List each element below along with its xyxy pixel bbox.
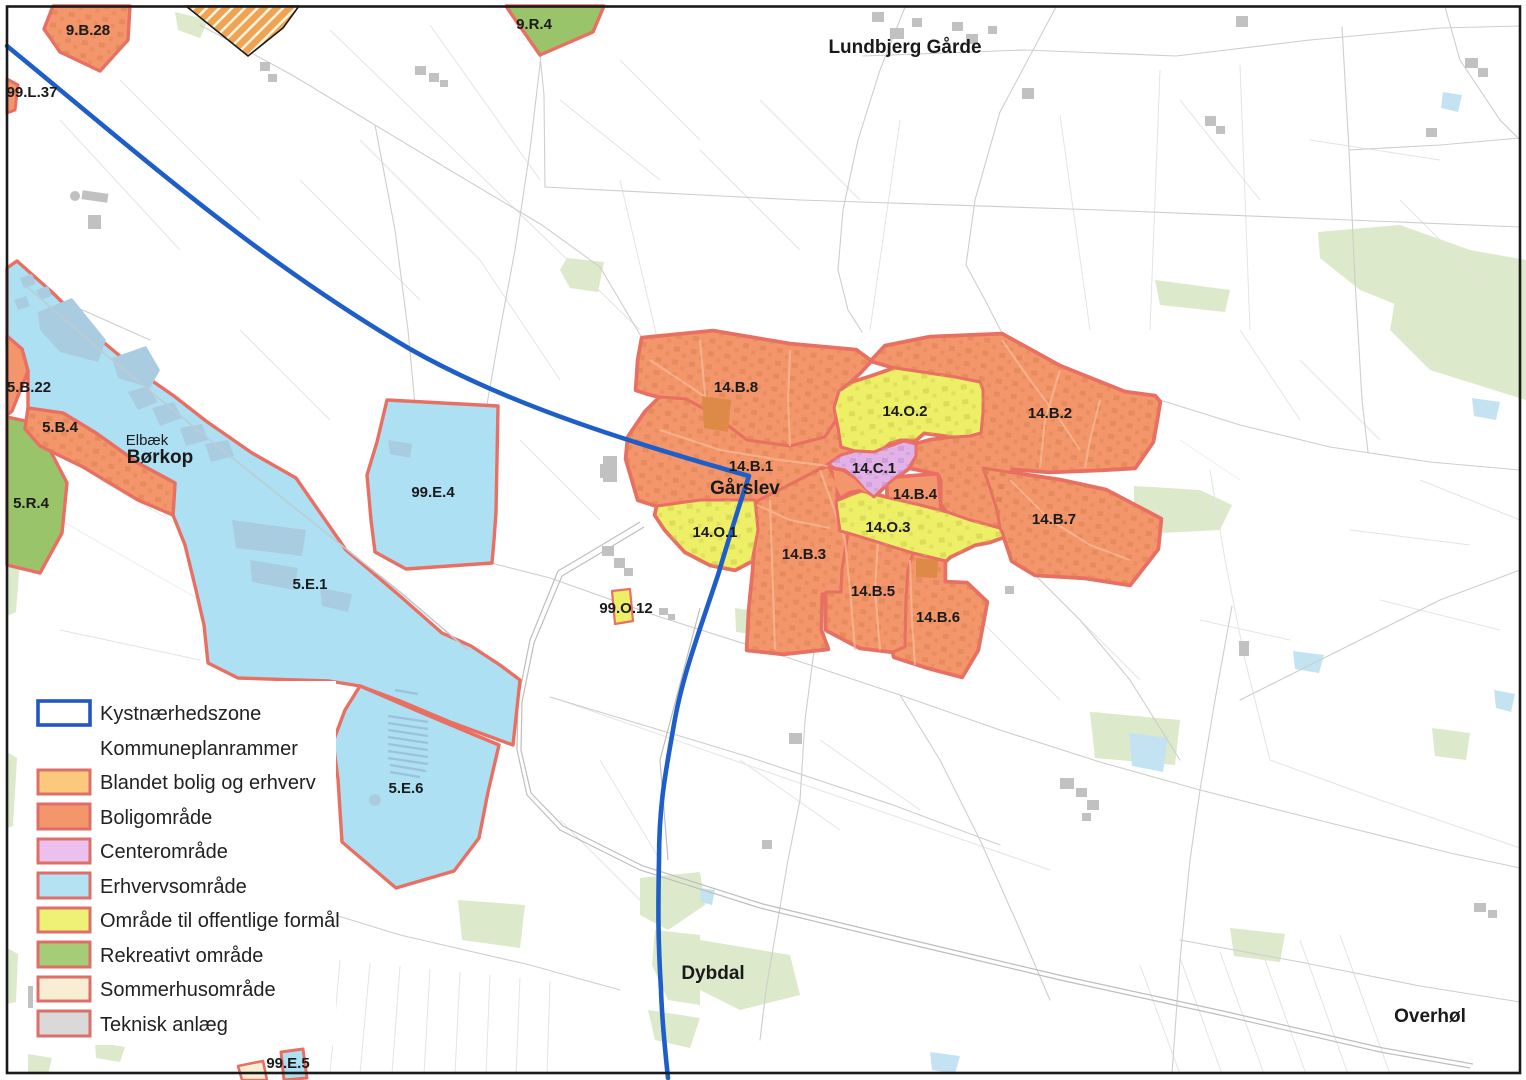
svg-text:Boligområde: Boligområde [100,807,212,829]
svg-text:14.B.6: 14.B.6 [916,609,960,626]
svg-text:Erhvervsområde: Erhvervsområde [100,876,247,898]
svg-text:Teknisk anlæg: Teknisk anlæg [100,1014,228,1036]
svg-text:5.E.6: 5.E.6 [388,780,423,797]
svg-text:14.O.3: 14.O.3 [865,519,910,536]
svg-text:Overhøl: Overhøl [1394,1006,1466,1027]
svg-text:14.O.1: 14.O.1 [692,524,737,541]
svg-text:5.E.1: 5.E.1 [292,576,327,593]
svg-text:Lundbjerg Gårde: Lundbjerg Gårde [828,37,981,58]
svg-text:99.L.37: 99.L.37 [7,84,58,101]
svg-text:Dybdal: Dybdal [681,963,744,984]
svg-text:Område til offentlige formål: Område til offentlige formål [100,910,340,932]
svg-text:9.R.4: 9.R.4 [516,16,553,33]
svg-text:9.B.28: 9.B.28 [66,22,110,39]
svg-text:14.B.4: 14.B.4 [893,486,938,503]
svg-text:Børkop: Børkop [127,447,194,468]
svg-text:Gårslev: Gårslev [710,478,780,499]
svg-text:99.O.12: 99.O.12 [599,600,652,617]
svg-text:14.B.8: 14.B.8 [714,379,758,396]
svg-text:99.E.4: 99.E.4 [411,484,455,501]
svg-text:14.C.1: 14.C.1 [852,460,896,477]
svg-text:14.B.1: 14.B.1 [729,458,773,475]
svg-text:Rekreativt område: Rekreativt område [100,945,263,967]
svg-text:99.E.5: 99.E.5 [266,1055,309,1072]
svg-text:14.O.2: 14.O.2 [882,403,927,420]
svg-text:Sommerhusområde: Sommerhusområde [100,979,276,1001]
svg-text:14.B.3: 14.B.3 [782,546,826,563]
svg-text:14.B.2: 14.B.2 [1028,405,1072,422]
svg-text:14.B.5: 14.B.5 [851,583,895,600]
svg-text:Kystnærhedszone: Kystnærhedszone [100,703,261,725]
svg-text:Blandet bolig og erhverv: Blandet bolig og erhverv [100,772,316,794]
svg-text:Centerområde: Centerområde [100,841,228,863]
svg-text:5.B.22: 5.B.22 [7,379,51,396]
svg-text:5.R.4: 5.R.4 [13,495,50,512]
svg-text:Kommuneplanrammer: Kommuneplanrammer [100,738,298,760]
svg-text:14.B.7: 14.B.7 [1032,511,1076,528]
svg-text:5.B.4: 5.B.4 [42,419,79,436]
